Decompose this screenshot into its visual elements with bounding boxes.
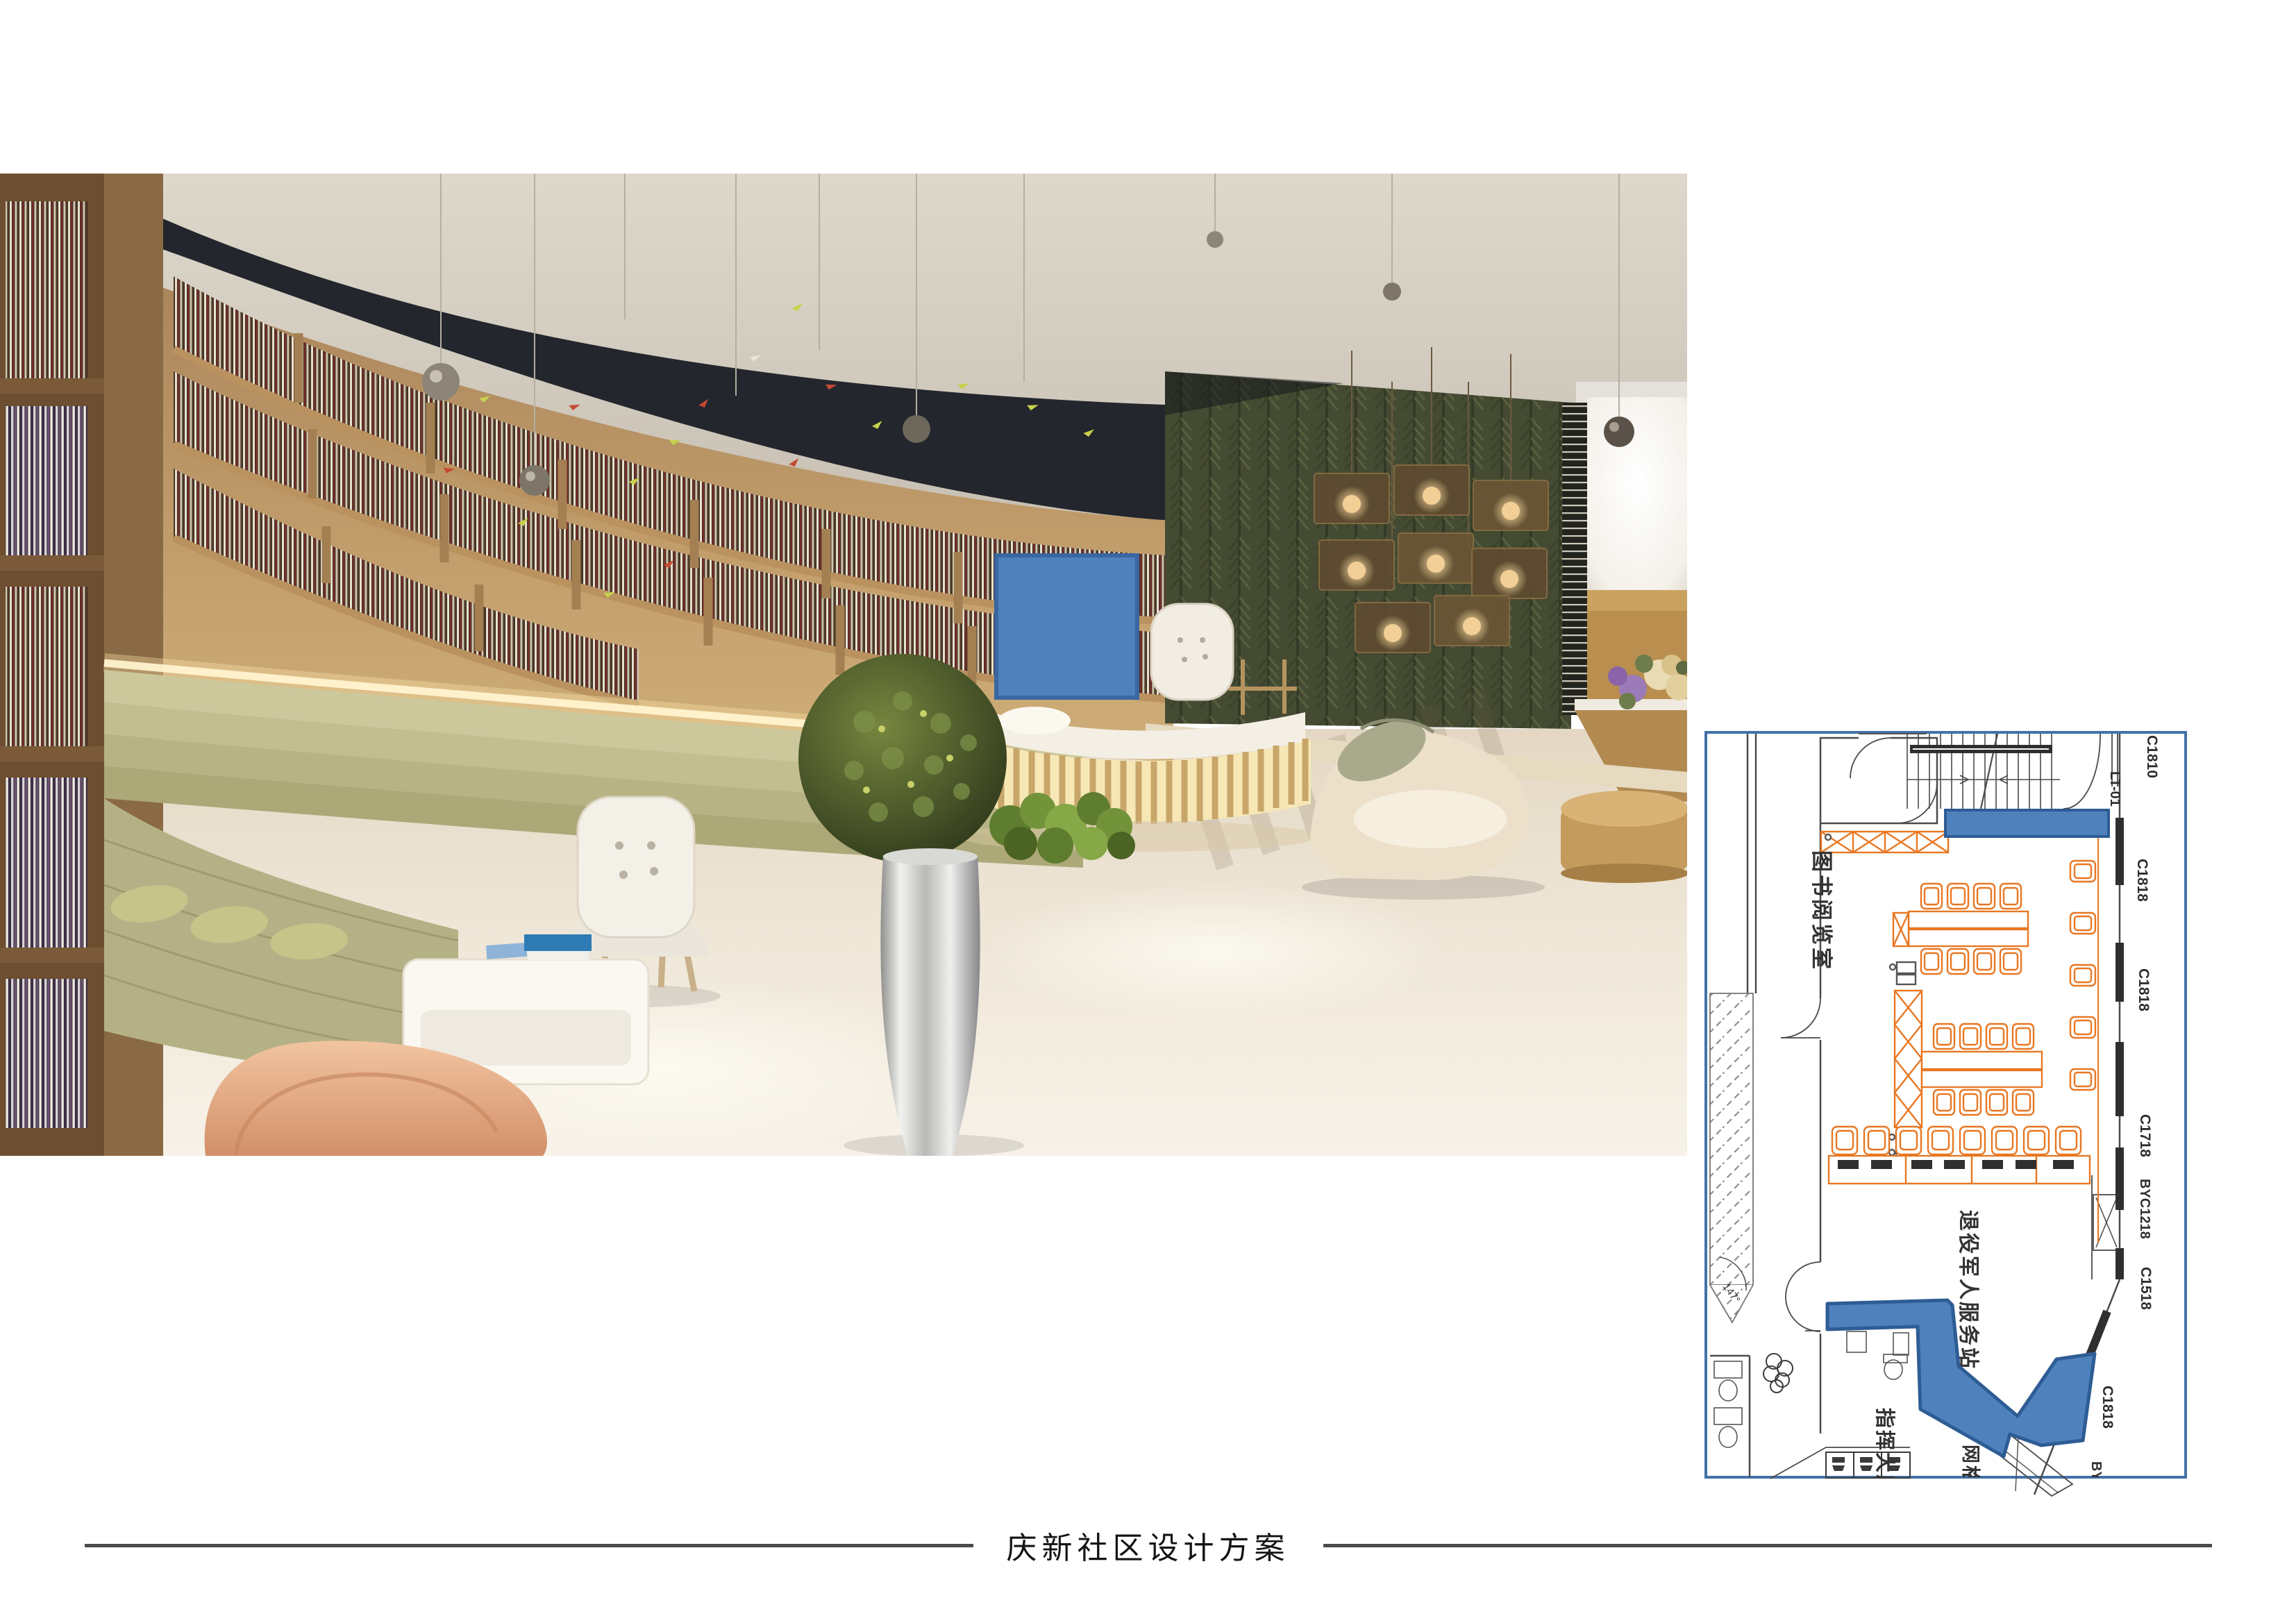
label-c1718: C1718 [2137, 1114, 2153, 1157]
design-proposal-page: 147° [0, 0, 2296, 1623]
footer: 庆新社区设计方案 [0, 1524, 2296, 1566]
label-c1818-diag: C1818 [2100, 1386, 2115, 1429]
bookshelf-hatch-top [1821, 832, 1948, 852]
label-reading-room: 图书阅览室 [1809, 850, 1834, 972]
book-small [486, 943, 527, 959]
escalator-hatch: 147° [1710, 993, 1753, 1322]
footer-rule-right [1323, 1544, 2212, 1547]
label-c1810: C1810 [2144, 735, 2160, 778]
blue-region-marker-photo [996, 555, 1137, 698]
label-byc1218: BYC1218 [2137, 1179, 2152, 1239]
label-c1818-mid: C1818 [2136, 968, 2152, 1011]
label-lt01: LT-01 [2107, 771, 2122, 807]
library-rendering-image [0, 174, 1687, 1156]
bright-window [1587, 397, 1687, 590]
floor-plan-panel: 147° [1704, 731, 2187, 1522]
blue-highlight-upper [1945, 810, 2109, 836]
book-blue [524, 934, 592, 951]
label-c1818-top: C1818 [2134, 859, 2150, 902]
page-title: 庆新社区设计方案 [1007, 1523, 1290, 1567]
book-white [528, 951, 589, 960]
wood-ottoman [1561, 791, 1687, 883]
library-rendering-canvas [0, 174, 1687, 1156]
footer-rule-left [85, 1544, 973, 1547]
label-grid-room: 网格 [1960, 1445, 1981, 1486]
window-blinds [1562, 403, 1587, 715]
floor-plan-canvas: 147° [1704, 731, 2187, 1522]
label-command-hall: 指挥大厅 [1873, 1408, 1896, 1497]
label-c1518: C1518 [2138, 1267, 2154, 1310]
label-veterans-station: 退役军人服务站 [1956, 1210, 1979, 1370]
